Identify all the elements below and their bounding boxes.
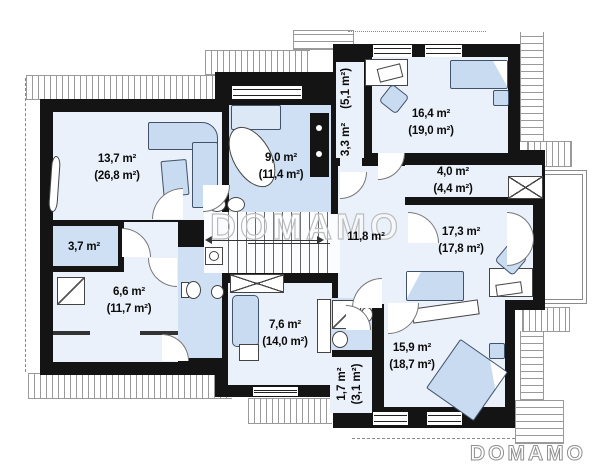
- room-area-total: (11,4 m²): [231, 167, 331, 184]
- toilet-icon: [186, 281, 201, 299]
- room-area-total: (17,8 m²): [411, 241, 511, 258]
- room-area: 6,6 m²: [79, 284, 179, 301]
- room-label-lounge: 7,6 m² (14,0 m²): [235, 317, 335, 350]
- room-area-total: (11,7 m²): [79, 301, 179, 318]
- room-area-total: (14,0 m²): [235, 334, 335, 351]
- room-area: 3,7 m²: [34, 239, 134, 256]
- appliance-knob: [316, 125, 322, 131]
- floor-plan: DOMAMO DOMAMO 13,7 m² (26,8 m²) 9,0 m² (…: [0, 0, 611, 470]
- roof-hatch-bottom-mid: [248, 398, 332, 424]
- roof-hatch-top-left: [26, 75, 216, 100]
- room-area: 1,7 m²: [335, 352, 350, 416]
- room-area: 15,9 m²: [362, 340, 462, 357]
- blanket-fold: [493, 61, 507, 86]
- washer-door: [209, 251, 219, 261]
- room-label-hall: 11,8 m²: [316, 229, 416, 246]
- washer-icon: [205, 247, 223, 265]
- room-area-total: (5,1 m²): [340, 68, 356, 109]
- room-area: 16,4 m²: [381, 106, 481, 123]
- nightstand-icon: [489, 343, 505, 359]
- room-area: 13,7 m²: [67, 151, 167, 168]
- brand-logo: DOMAMO: [458, 442, 598, 466]
- window-lounge: [253, 387, 298, 396]
- room-area-total: (4,4 m²): [403, 181, 503, 198]
- room-area: 11,8 m²: [316, 229, 416, 246]
- window-bedroom-top-2: [425, 45, 462, 57]
- room-label-wardrobe-corridor: 3,3 m² (5,1 m²): [340, 47, 356, 177]
- room-area-total: (18,7 m²): [362, 357, 462, 374]
- room-label-bath-main: 9,0 m² (11,4 m²): [231, 150, 331, 183]
- blanket-fold: [407, 272, 421, 298]
- wardrobe-icon: [508, 176, 543, 199]
- window-bath-main: [232, 86, 302, 99]
- window-bedroom-bottom-1: [373, 412, 408, 425]
- nightstand-icon: [493, 90, 509, 106]
- plot-line-left: [25, 78, 26, 372]
- room-label-closet-left: 3,7 m²: [34, 239, 134, 256]
- room-label-niche: 4,0 m² (4,4 m²): [403, 164, 503, 197]
- steps-bottom-right: [515, 400, 564, 444]
- room-area: 9,0 m²: [231, 150, 331, 167]
- room-label-bedroom-bottom: 15,9 m² (18,7 m²): [362, 340, 462, 373]
- window-bedroom-bottom-2: [427, 412, 462, 425]
- roof-hatch-right-lower: [520, 331, 544, 400]
- roof-hatch-right-upper: [520, 32, 544, 142]
- window-bedroom-top-1: [373, 45, 412, 57]
- room-area: 3,3 m²: [340, 123, 356, 156]
- room-area: 4,0 m²: [403, 164, 503, 181]
- room-label-living: 13,7 m² (26,8 m²): [67, 151, 167, 184]
- bed-icon: [450, 60, 508, 89]
- room-area-total: (26,8 m²): [67, 168, 167, 185]
- balcony-railing: [545, 174, 583, 300]
- roof-hatch-bottom-left: [28, 373, 232, 399]
- room-area: 17,3 m²: [411, 224, 511, 241]
- room-area: 7,6 m²: [235, 317, 335, 334]
- plot-line-bottom: [352, 438, 515, 439]
- balcony-steps-bottom: [522, 307, 570, 332]
- room-label-bath-left: 6,6 m² (11,7 m²): [79, 284, 179, 317]
- room-area-total: (19,0 m²): [381, 123, 481, 140]
- room-label-bedroom-top: 16,4 m² (19,0 m²): [381, 106, 481, 139]
- knee-wall: [53, 331, 90, 335]
- wardrobe-icon: [230, 274, 284, 293]
- room-label-storage: 1,7 m² (3,1 m²): [335, 352, 365, 416]
- sink-icon: [211, 285, 224, 299]
- bed-icon: [406, 271, 464, 301]
- roof-line-top: [348, 31, 486, 32]
- knee-wall: [140, 331, 178, 335]
- balcony: [545, 170, 587, 304]
- room-label-bedroom-right: 17,3 m² (17,8 m²): [411, 224, 511, 257]
